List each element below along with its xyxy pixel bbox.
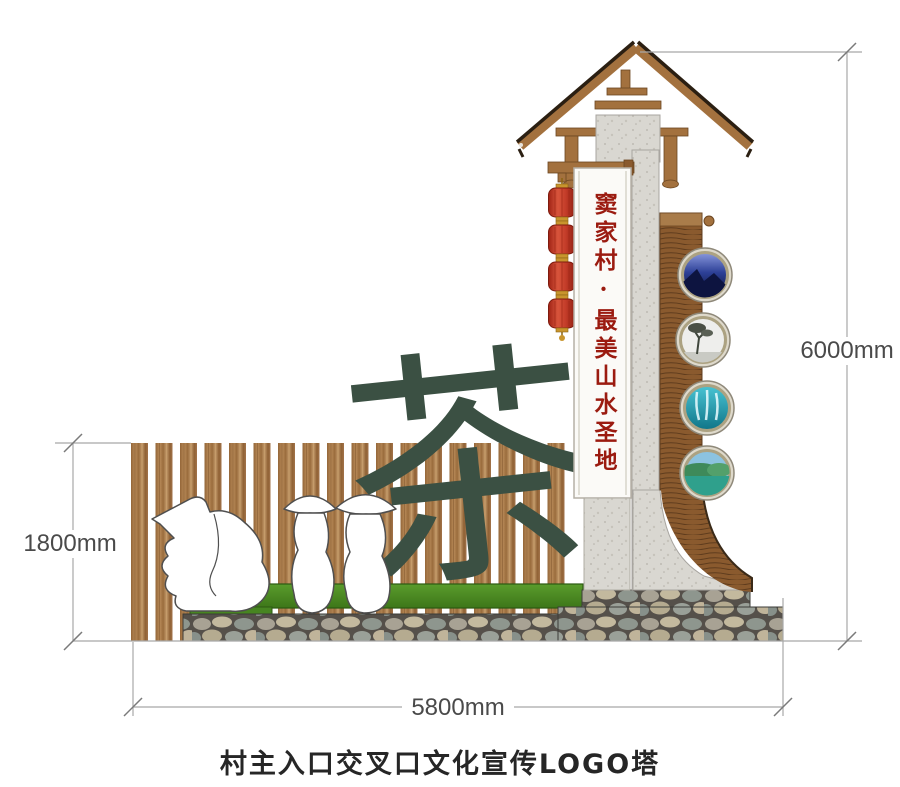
drawing-caption: 村主入口交叉口文化宣传LOGO塔 (0, 742, 880, 781)
base-width-dimension-label: 5800mm (402, 694, 514, 722)
red-lantern (549, 221, 576, 258)
design-rendering: 茶 (0, 0, 900, 787)
sign-pedestal (584, 498, 630, 590)
waterfall-photo (680, 381, 734, 435)
lake-hills-photo (680, 446, 734, 500)
tower-height-dimension-label: 6000mm (792, 337, 900, 365)
misty-tree-photo (676, 313, 730, 367)
illustration: 茶 (0, 0, 900, 787)
blue-mountains-photo (678, 248, 732, 302)
red-lantern (549, 258, 576, 295)
banner-text: 窦家村·最美山水圣地 (577, 178, 629, 490)
red-lantern (549, 295, 576, 332)
wooden-peg (704, 216, 714, 226)
lantern-string (549, 178, 576, 341)
fence-height-dimension-label: 1800mm (20, 530, 120, 558)
red-lantern (549, 184, 576, 221)
